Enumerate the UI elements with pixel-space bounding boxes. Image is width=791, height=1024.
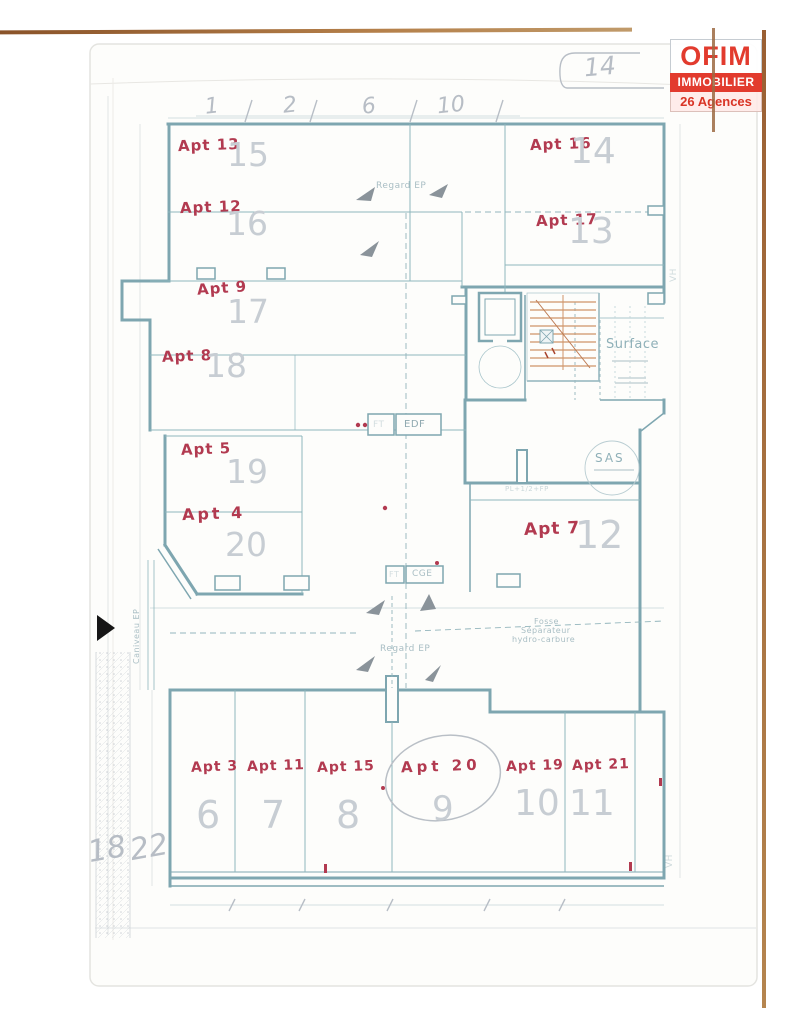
apt-label-21: Apt 21 (572, 757, 630, 773)
cge-box-label: CGE (412, 570, 432, 579)
apt-label-11: Apt 11 (247, 758, 305, 774)
pl-note-label: PL+1/2+FP (505, 486, 549, 493)
fosse-label-line2: Séparateur (521, 627, 571, 635)
scan-edge-inner (712, 28, 715, 132)
room-number-16: 16 (226, 207, 268, 240)
apt-label-15: Apt 15 (317, 759, 375, 775)
room-number-14: 14 (570, 134, 616, 170)
stall-number-11: 11 (569, 786, 615, 822)
edf-box-label: EDF (404, 420, 425, 430)
ft-upper-box-label: FT (373, 421, 385, 430)
stall-number-7: 7 (261, 796, 285, 834)
apt-label-7: Apt 7 (524, 520, 581, 539)
apt-label-19: Apt 19 (506, 758, 564, 774)
surface-label: Surface (606, 338, 659, 351)
apt-label-3: Apt 3 (191, 759, 239, 775)
margin-number-18: 18 (86, 832, 129, 868)
fosse-label-line3: hydro-carbure (512, 636, 575, 644)
floor-plan-drawing (0, 0, 791, 1024)
page-ref-number: 14 (583, 53, 617, 81)
stall-number-9: 9 (432, 792, 454, 826)
logo-line3: 26 Agences (670, 92, 762, 112)
vh-right-label: VH (670, 268, 679, 282)
room-number-12: 12 (575, 516, 623, 554)
top-dim-2: 2 (282, 94, 298, 117)
vh-bottom-label: VH (666, 854, 675, 868)
illegible-text-bar (612, 360, 648, 362)
apt-label-20: Apt 20 (401, 758, 481, 776)
room-number-20: 20 (225, 528, 267, 561)
caniveau-ep-label: Caniveau EP (133, 609, 141, 664)
stall-number-6: 6 (196, 796, 220, 834)
regard-ep-top-label: Regard EP (376, 182, 426, 191)
illegible-text-bar (615, 382, 648, 384)
top-dim-1: 1 (204, 95, 220, 118)
room-number-15: 15 (227, 138, 269, 171)
scan-edge-right (762, 30, 766, 1008)
room-number-13: 13 (568, 214, 614, 250)
top-dim-3: 6 (361, 95, 377, 118)
apt-label-4: Apt 4 (182, 505, 246, 523)
ft-lower-box-label: FT (389, 571, 399, 579)
apt-label-5: Apt 5 (181, 441, 232, 458)
wall-stub (517, 450, 527, 483)
room-number-17: 17 (227, 295, 269, 328)
illegible-text-bar (618, 377, 646, 379)
regard-ep-bottom-label: Regard EP (380, 645, 430, 654)
illegible-text-bar (594, 469, 634, 471)
stall-number-10: 10 (514, 786, 560, 822)
top-dim-4: 10 (436, 94, 466, 119)
stall-number-8: 8 (336, 796, 360, 834)
room-number-19: 19 (226, 455, 268, 488)
ofim-logo: OFIM IMMOBILIER 26 Agences (670, 39, 762, 112)
logo-name: OFIM (670, 39, 762, 73)
sas-label: SAS (595, 452, 625, 464)
fosse-label-line1: Fosse (534, 618, 559, 626)
margin-number-22: 22 (128, 830, 171, 866)
logo-line2: IMMOBILIER (670, 73, 762, 92)
room-number-18: 18 (205, 349, 247, 382)
scanned-floor-plan-page: OFIM IMMOBILIER 26 Agences 14 1 2 6 10 A… (0, 0, 791, 1024)
hatch-strip (96, 652, 130, 938)
